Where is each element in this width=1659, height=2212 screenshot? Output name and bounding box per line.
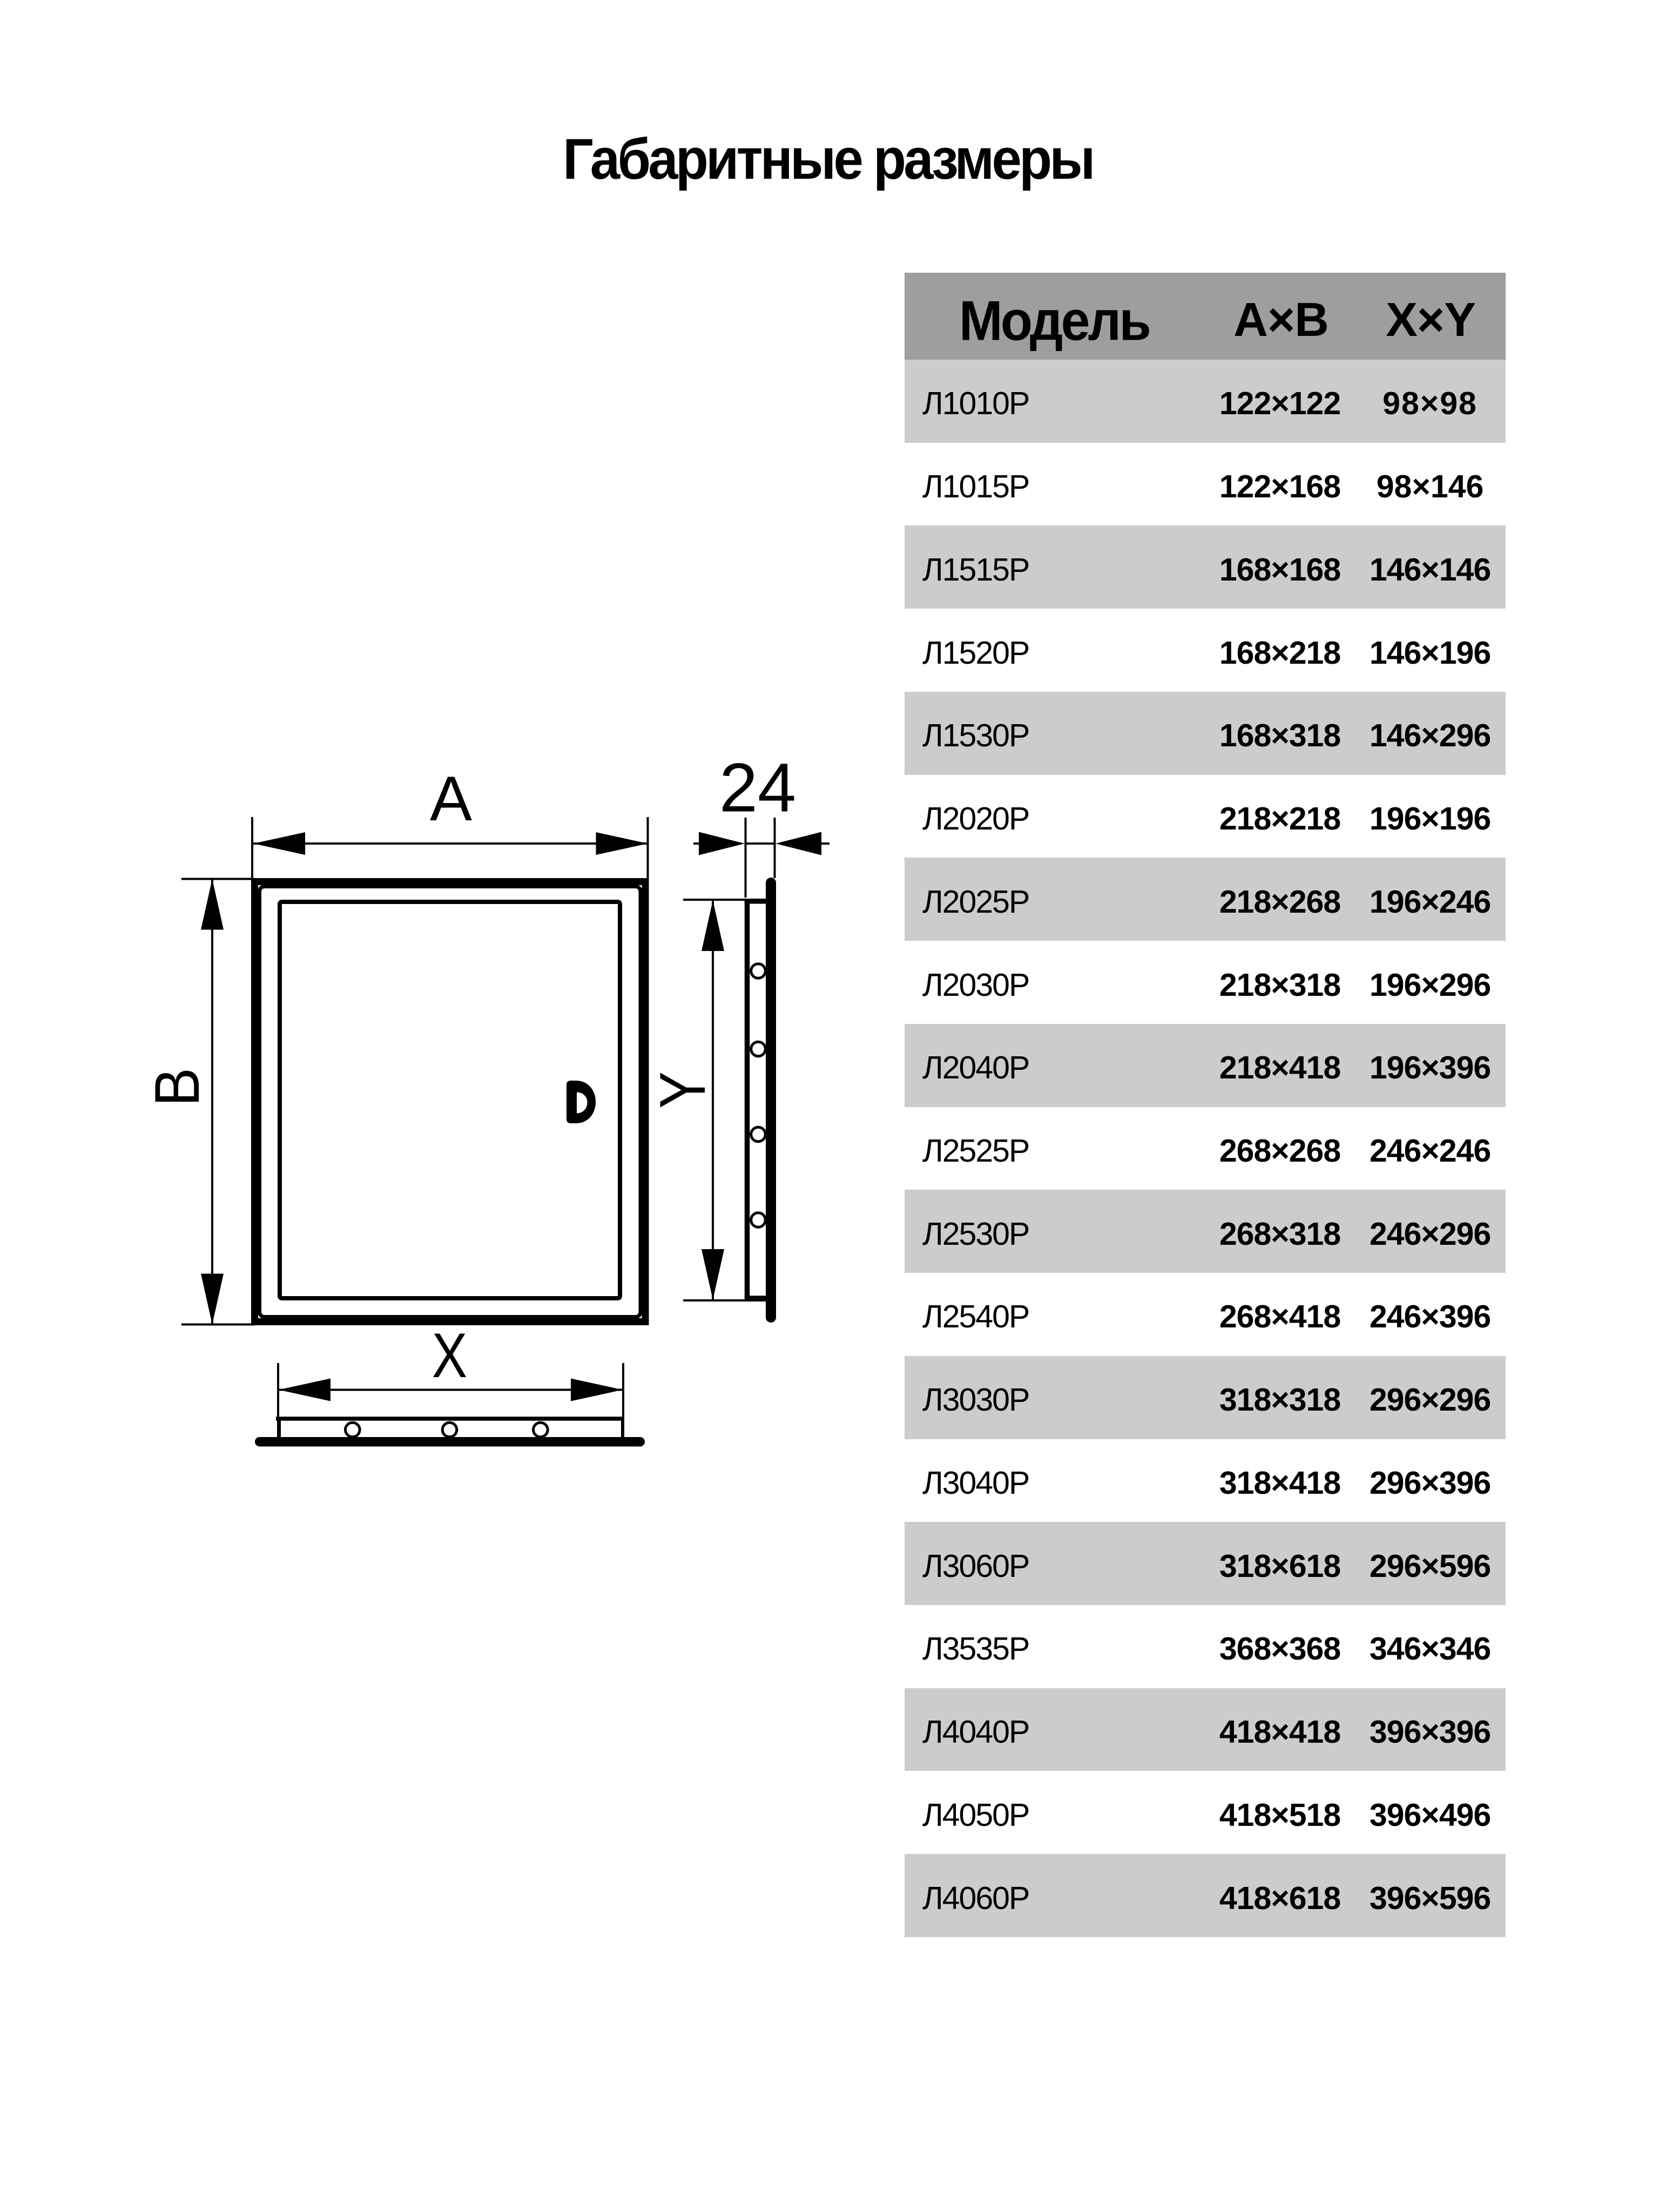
svg-text:Y: Y [646, 1071, 719, 1109]
svg-text:A: A [430, 763, 472, 834]
svg-text:B: B [141, 1068, 212, 1107]
svg-text:24: 24 [719, 750, 796, 827]
svg-text:X: X [432, 1320, 468, 1391]
